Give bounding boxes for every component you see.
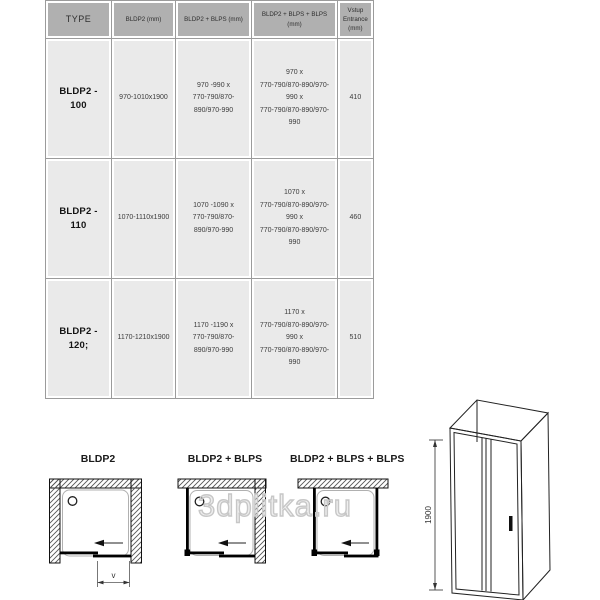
cell-bldp2-blps-blps: 1070 x 770-790/870-890/970-990 x 770-790… [252,159,337,278]
entrance-dim-label: v [112,571,116,580]
height-dim-label: 1900 [425,506,433,524]
plan-label-bldp2: BLDP2 [48,453,148,467]
wall-left [50,479,61,563]
table-row: BLDP2 - 120; 1170-1210x1900 1170 -1190 x… [46,279,373,398]
cell-entrance: 460 [338,159,373,278]
wall-right [131,479,142,563]
wall-top [298,479,388,488]
plan-diagram-bldp2-blps-blps [296,475,396,593]
entrance-dimension: v [98,561,130,587]
plan-label-bldp2-blps-blps: BLDP2 + BLPS + BLPS [290,453,402,467]
wall-top [178,479,266,488]
col-header-bldp2-blps-blps: BLDP2 + BLPS + BLPS (mm) [252,1,337,38]
cell-bldp2-blps: 1070 -1090 x 770-790/870-890/970-990 [176,159,251,278]
header-row: TYPE BLDP2 (mm) BLDP2 + BLPS (mm) BLDP2 … [46,1,373,38]
plan-diagram-bldp2-blps [175,475,275,593]
drain-icon [321,497,330,506]
plan-diagram-bldp2: v [48,475,148,593]
door-sliding-part [93,555,131,558]
col-header-bldp2-blps: BLDP2 + BLPS (mm) [176,1,251,38]
wall-right [255,479,266,563]
door-fixed-part [315,552,348,555]
cell-bldp2-blps: 1170 -1190 x 770-790/870-890/970-990 [176,279,251,398]
cell-bldp2: 970-1010x1900 [112,39,175,158]
cell-bldp2-blps-blps: 970 x 770-790/870-890/970-990 x 770-790/… [252,39,337,158]
wall-top [50,479,142,488]
drain-icon [195,497,204,506]
cell-type: BLDP2 - 110 [46,159,111,278]
door-sliding-part [219,555,255,558]
plan-label-bldp2-blps: BLDP2 + BLPS [169,453,281,467]
door-fixed-part [60,552,98,555]
cell-entrance: 410 [338,39,373,158]
col-header-bldp2: BLDP2 (mm) [112,1,175,38]
drain-icon [68,497,77,506]
door-sliding-part [344,555,379,558]
cell-bldp2: 1070-1110x1900 [112,159,175,278]
cell-type: BLDP2 - 100 [46,39,111,158]
elevation-drawing: 1900 [425,385,600,600]
height-dimension: 1900 [425,440,443,590]
table-row: BLDP2 - 110 1070-1110x1900 1070 -1090 x … [46,159,373,278]
blps-fixed-panel-right [374,488,380,556]
enclosure-box [450,400,550,600]
blps-fixed-panel-left [185,488,191,556]
col-header-type: TYPE [46,1,111,38]
cell-type: BLDP2 - 120; [46,279,111,398]
right-face [521,413,550,600]
blps-fixed-panel-left [312,488,318,556]
door-fixed-part [188,552,224,555]
cell-bldp2-blps-blps: 1170 x 770-790/870-890/970-990 x 770-790… [252,279,337,398]
col-header-entrance: Vstup Entrance (mm) [338,1,373,38]
table-row: BLDP2 - 100 970-1010x1900 970 -990 x 770… [46,39,373,158]
cell-entrance: 510 [338,279,373,398]
door-handle [509,516,513,531]
cell-bldp2: 1170-1210x1900 [112,279,175,398]
dimensions-table: TYPE BLDP2 (mm) BLDP2 + BLPS (mm) BLDP2 … [45,0,374,399]
cell-bldp2-blps: 970 -990 x 770-790/870-890/970-990 [176,39,251,158]
spec-sheet-page: TYPE BLDP2 (mm) BLDP2 + BLPS (mm) BLDP2 … [0,0,600,600]
